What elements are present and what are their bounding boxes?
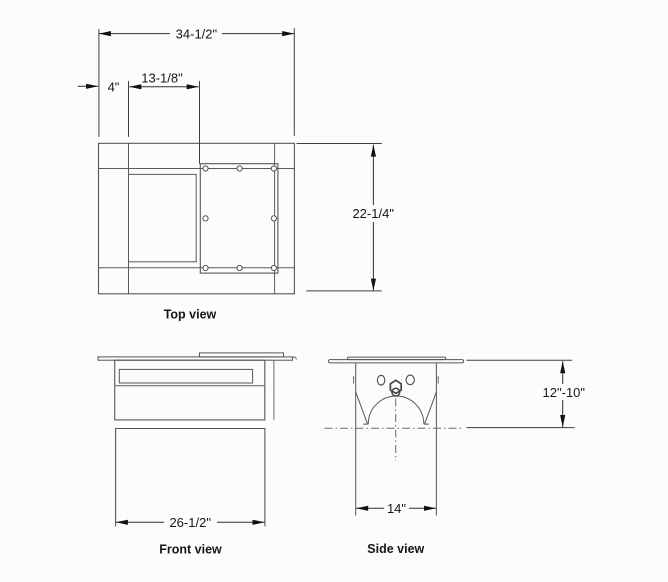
svg-text:Side view: Side view xyxy=(367,542,424,556)
svg-text:Top view: Top view xyxy=(164,308,217,322)
svg-text:13-1/8": 13-1/8" xyxy=(141,71,183,86)
svg-text:34-1/2": 34-1/2" xyxy=(176,26,218,41)
svg-text:4": 4" xyxy=(108,79,120,94)
svg-text:22-1/4": 22-1/4" xyxy=(352,206,394,221)
svg-text:14": 14" xyxy=(387,501,406,516)
svg-text:26-1/2": 26-1/2" xyxy=(169,515,211,530)
svg-text:Front view: Front view xyxy=(159,543,222,557)
svg-text:12"-10": 12"-10" xyxy=(543,385,586,400)
